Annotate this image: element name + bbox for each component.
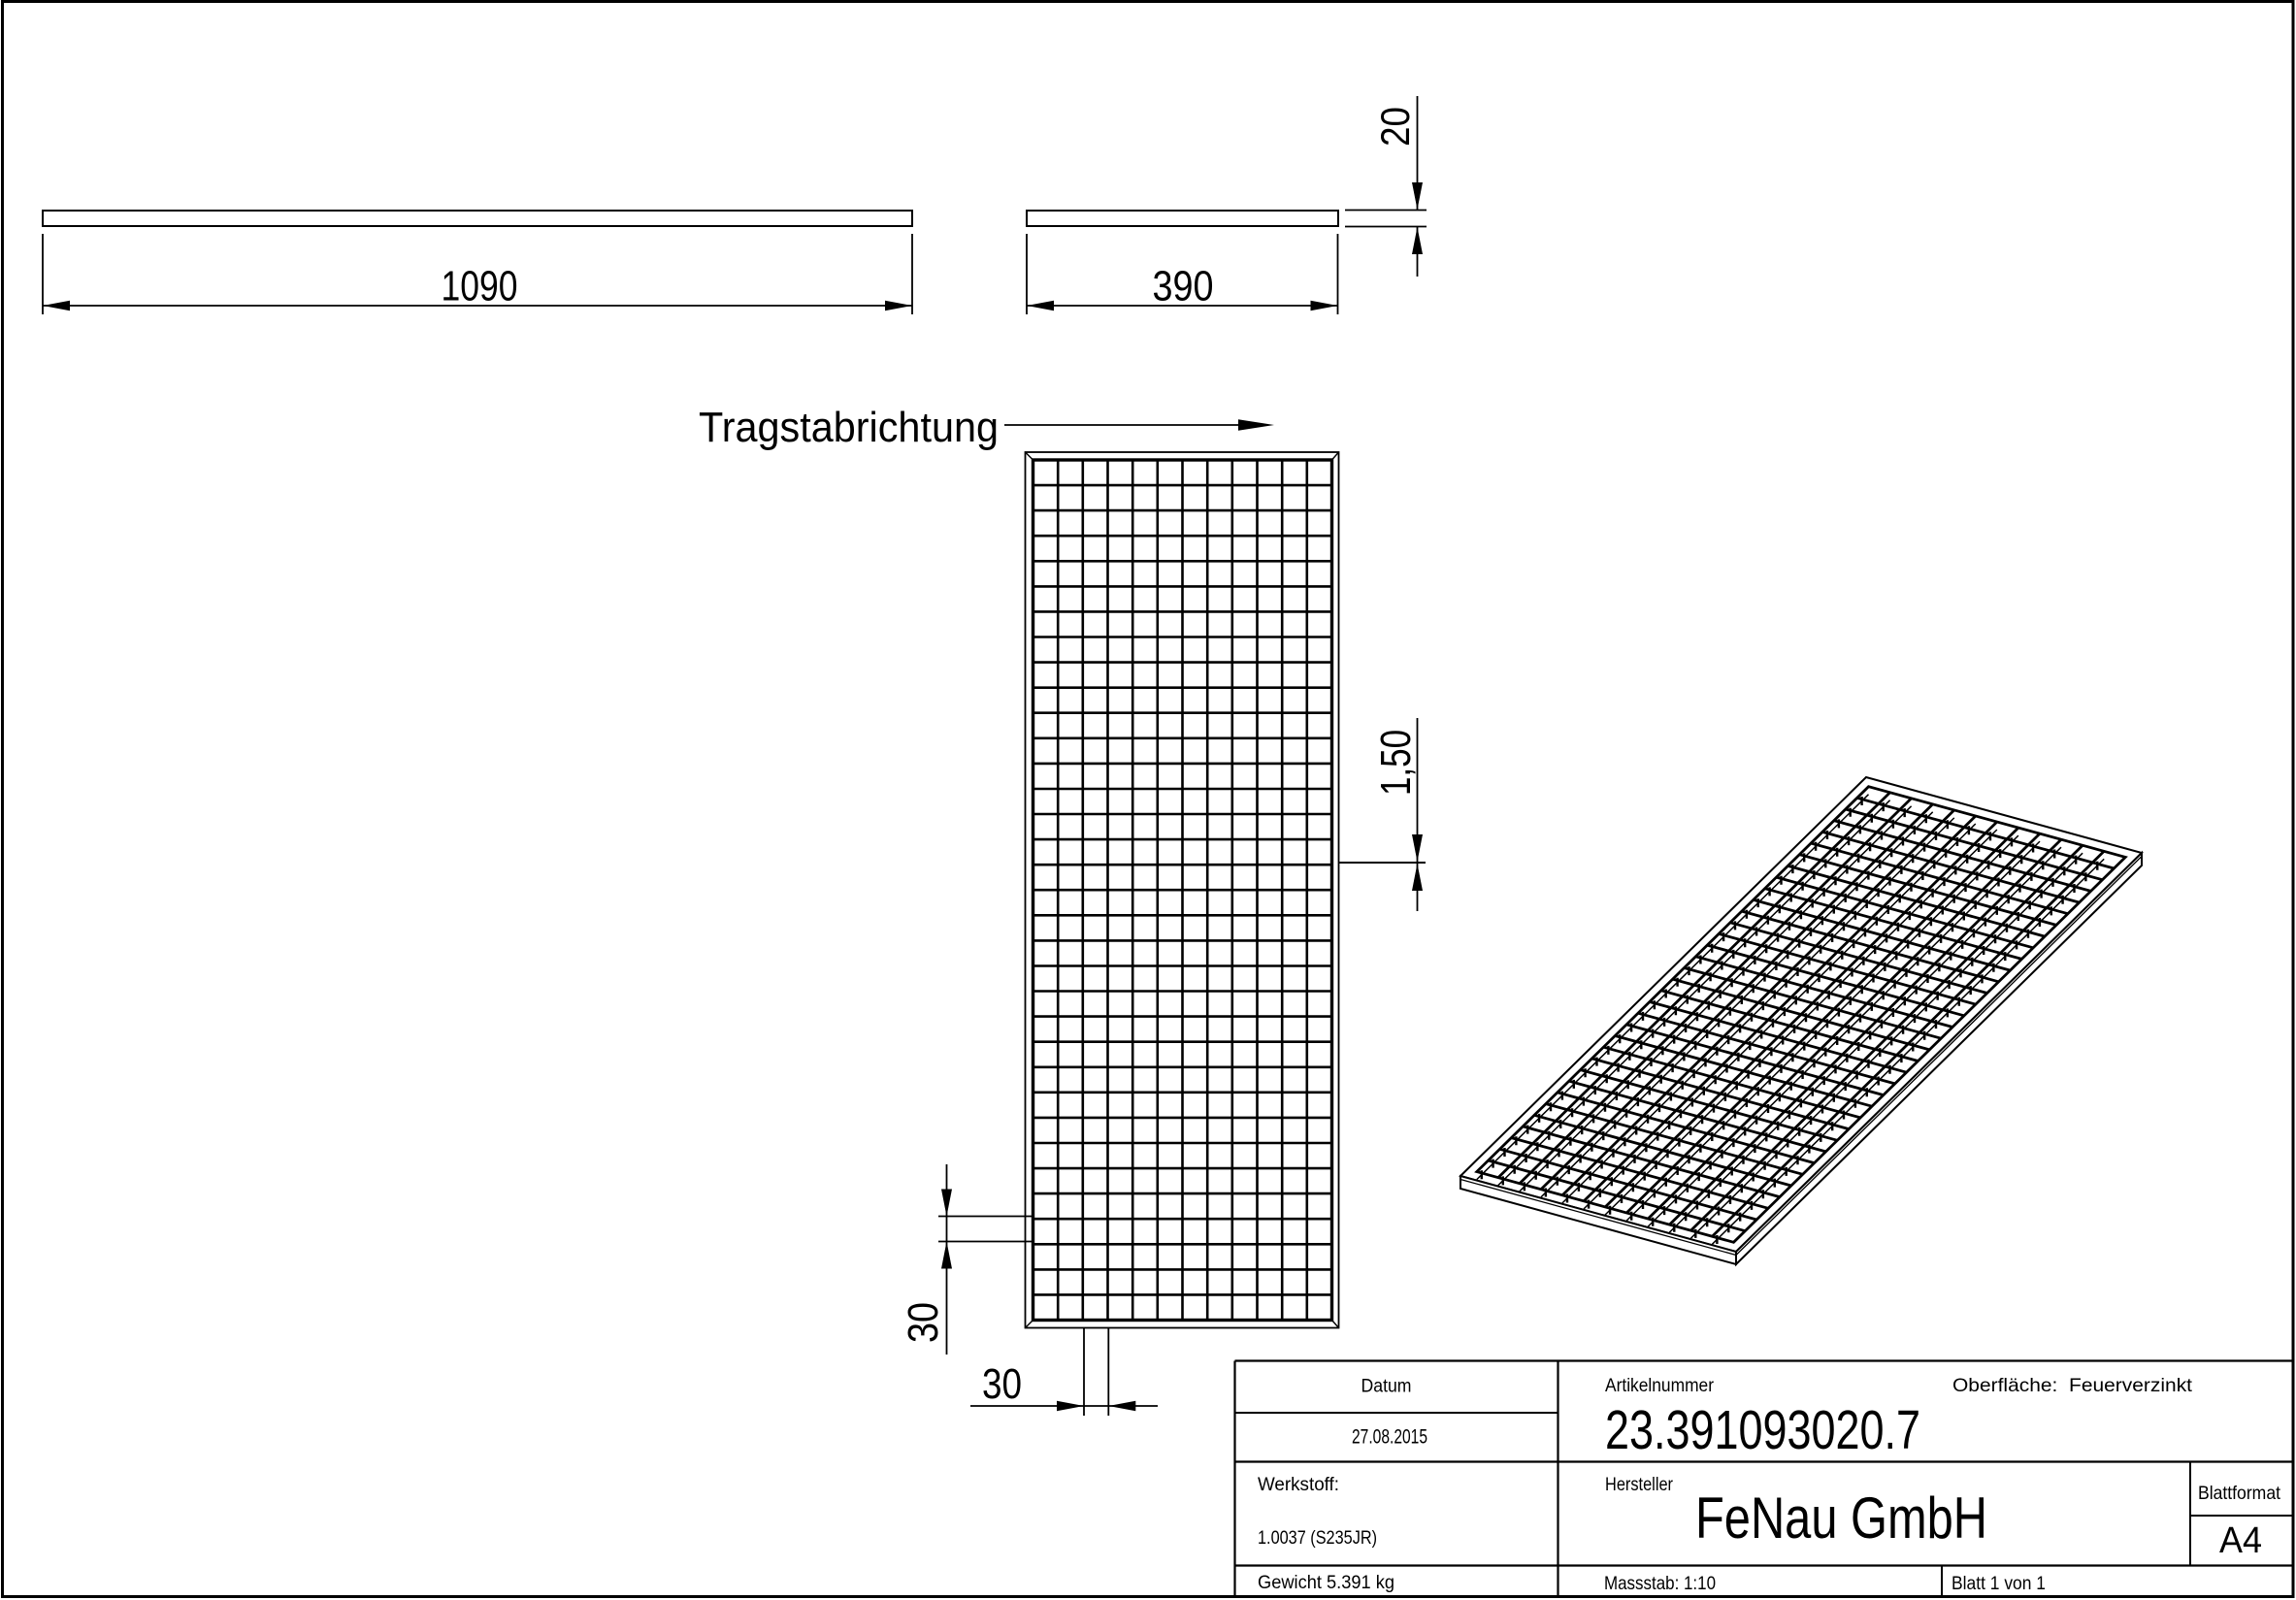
svg-text:Oberfläche: Feuerverzinkt: Oberfläche: Feuerverzinkt bbox=[1952, 1375, 2193, 1396]
svg-text:Gewicht 5.391 kg: Gewicht 5.391 kg bbox=[1258, 1572, 1394, 1593]
svg-text:Artikelnummer: Artikelnummer bbox=[1605, 1375, 1714, 1396]
svg-text:Blatt 1 von 1: Blatt 1 von 1 bbox=[1952, 1573, 2046, 1594]
svg-text:23.391093020.7: 23.391093020.7 bbox=[1605, 1399, 1920, 1461]
svg-text:Blattformat: Blattformat bbox=[2198, 1483, 2281, 1504]
svg-text:30: 30 bbox=[901, 1302, 947, 1343]
svg-text:30: 30 bbox=[982, 1361, 1022, 1408]
svg-text:Massstab: 1:10: Massstab: 1:10 bbox=[1604, 1573, 1716, 1594]
svg-text:Tragstabrichtung: Tragstabrichtung bbox=[699, 404, 999, 451]
svg-text:390: 390 bbox=[1153, 264, 1214, 310]
svg-text:Werkstoff:: Werkstoff: bbox=[1258, 1474, 1339, 1495]
svg-text:FeNau GmbH: FeNau GmbH bbox=[1695, 1486, 1987, 1551]
svg-text:20: 20 bbox=[1372, 107, 1418, 147]
svg-text:1,50: 1,50 bbox=[1373, 730, 1420, 796]
svg-text:27.08.2015: 27.08.2015 bbox=[1352, 1426, 1427, 1449]
svg-text:1090: 1090 bbox=[442, 264, 518, 310]
svg-text:Datum: Datum bbox=[1361, 1376, 1412, 1397]
svg-text:A4: A4 bbox=[2219, 1520, 2262, 1561]
svg-text:1.0037 (S235JR): 1.0037 (S235JR) bbox=[1258, 1527, 1377, 1549]
svg-text:Hersteller: Hersteller bbox=[1605, 1474, 1673, 1495]
